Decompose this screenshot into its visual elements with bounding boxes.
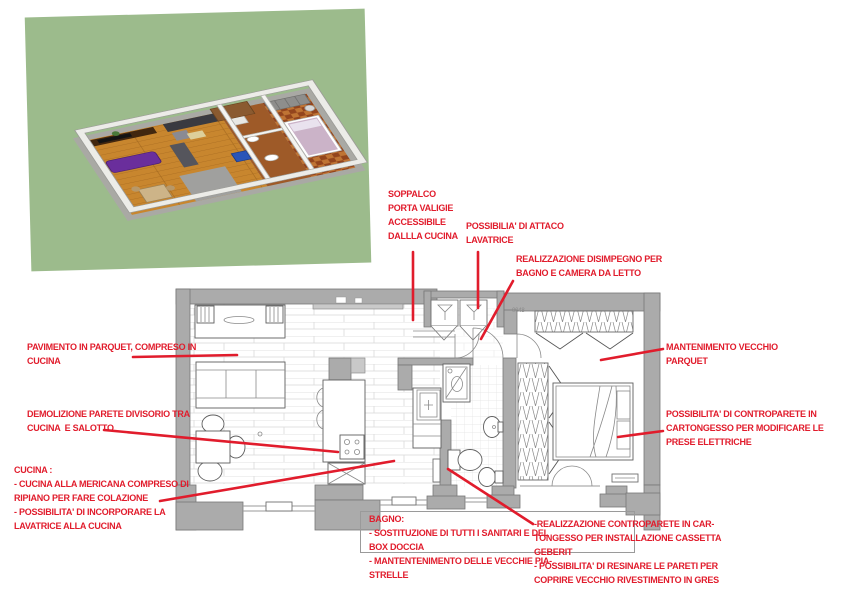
annotation-bagno: BAGNO: - SOSTITUZIONE DI TUTTI I SANITAR… xyxy=(369,512,552,582)
wall-notch xyxy=(336,297,346,303)
bedroom-door-arc xyxy=(517,334,541,358)
wardrobe-top xyxy=(535,311,633,332)
wardrobe-front xyxy=(586,333,633,349)
radiator xyxy=(433,459,440,482)
peninsula-anchor-step xyxy=(351,358,365,373)
footing xyxy=(492,486,514,496)
right-wall xyxy=(644,293,660,485)
niche-side-wall xyxy=(424,291,431,327)
annotation-controparete: POSSIBILITA' DI CONTROPARETE IN CARTONGE… xyxy=(666,407,824,449)
annotation-soppalco: SOPPALCO PORTA VALIGIE ACCESSIBILE DALLL… xyxy=(388,187,458,243)
annotation-cucina: CUCINA : - CUCINA ALLA MERICANA COMPRESO… xyxy=(14,463,189,533)
dining-chair xyxy=(202,415,224,433)
footing xyxy=(427,496,465,509)
bidet-back xyxy=(495,471,503,483)
washer-attack-box xyxy=(460,300,487,326)
toilet-bowl xyxy=(458,450,482,471)
washer-attack-box xyxy=(431,300,458,326)
footing xyxy=(315,485,363,500)
window-sill-block xyxy=(392,497,416,505)
french-door-arc xyxy=(552,466,572,486)
peninsula-anchor-wall xyxy=(329,358,351,380)
sofa xyxy=(196,362,285,408)
cooktop xyxy=(340,435,364,459)
dining-table xyxy=(196,431,230,463)
striped-cabinet xyxy=(197,306,214,323)
kitchen-wall-leg xyxy=(398,365,412,390)
bidet-bowl xyxy=(479,468,496,487)
annotation-disimpegno: REALIZZAZIONE DISIMPEGNO PER BAGNO E CAM… xyxy=(516,252,662,280)
soppalco-ledge xyxy=(313,304,403,309)
left-wall xyxy=(176,289,190,485)
plan-dimension-label: 0048 xyxy=(512,308,525,314)
bedroom xyxy=(518,311,633,480)
window-sill-block xyxy=(266,502,292,511)
footing xyxy=(433,485,457,497)
annotation-attacco-lavatrice: POSSIBILIA' DI ATTACO LAVATRICE xyxy=(466,219,564,247)
annotation-geberit: -REALIZZAZIONE CONTROPARETE IN CAR- TONG… xyxy=(534,517,721,587)
niche-back-wall xyxy=(424,291,504,298)
top-wall-left xyxy=(176,289,437,304)
wardrobe-left xyxy=(518,363,548,480)
annotation-pavimento: PAVIMENTO IN PARQUET, COMPRESO IN CUCINA xyxy=(27,340,196,368)
wardrobe-front xyxy=(536,333,583,349)
wall-notch xyxy=(355,298,362,303)
annotation-demolizione: DEMOLIZIONE PARETE DIVISORIO TRA CUCINA … xyxy=(27,407,190,435)
top-wall-right xyxy=(504,293,660,311)
sink-tap xyxy=(498,422,503,432)
annotation-mantenimento: MANTENIMENTO VECCHIO PARQUET xyxy=(666,340,778,368)
striped-cabinet xyxy=(266,306,283,323)
bathroom-right-wall xyxy=(503,358,516,488)
french-door-arc xyxy=(572,466,592,486)
dining-chair xyxy=(198,461,222,481)
page: 0048 SOPPALCO PORTA VALIGIE ACCESSIBILE … xyxy=(0,0,841,594)
